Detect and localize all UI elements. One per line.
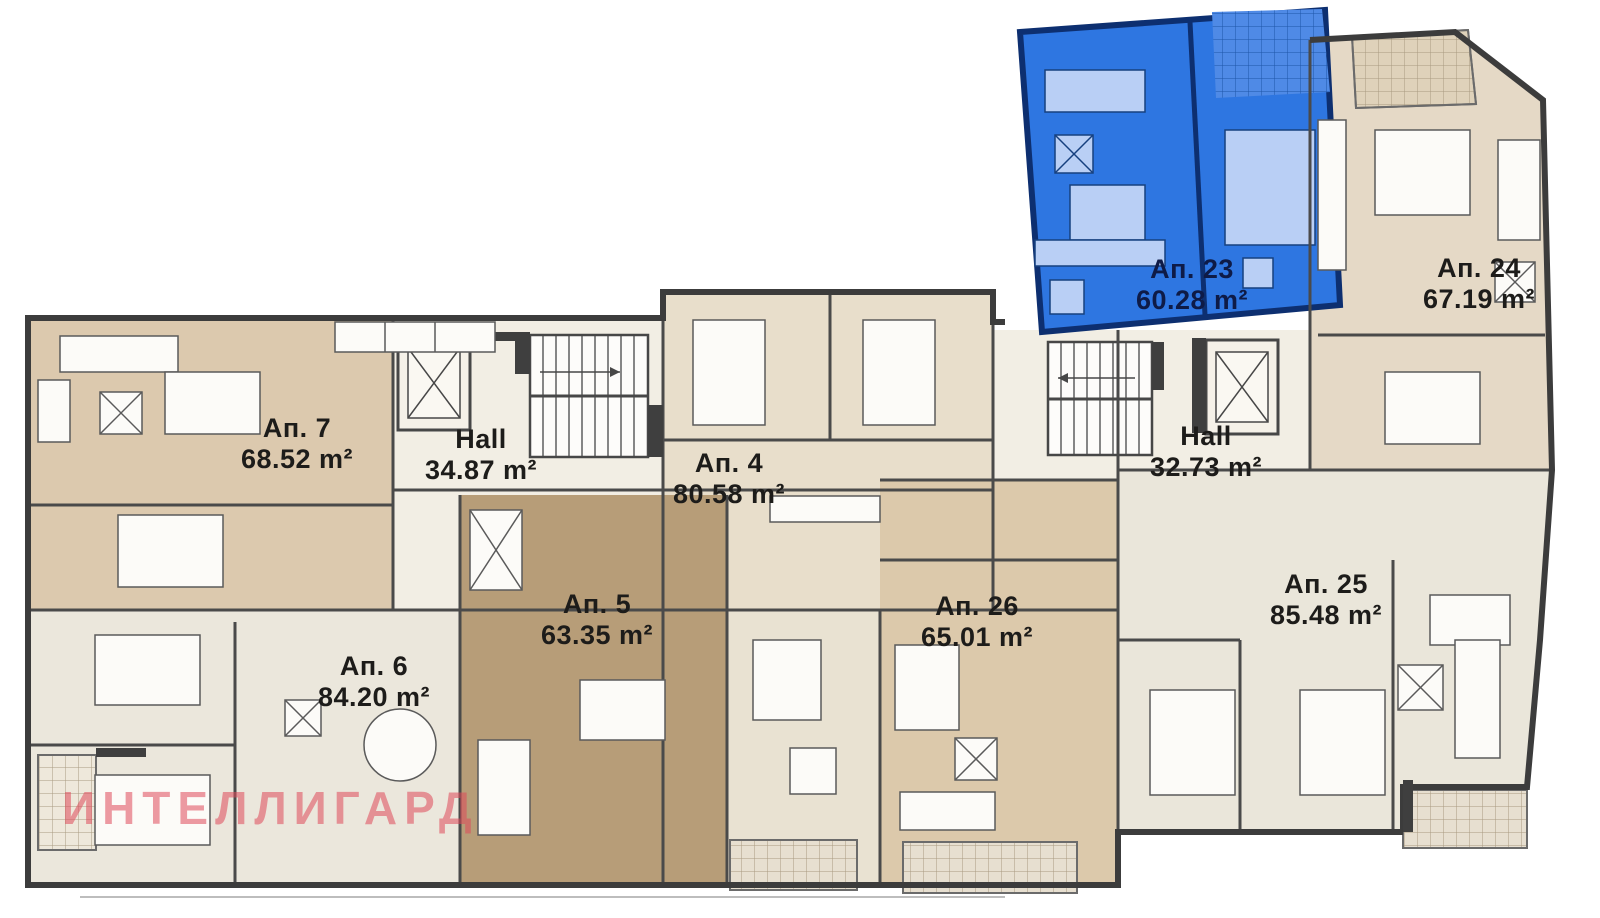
unit-name: Ап. 23 [1136, 254, 1248, 285]
unit-area: 85.48 m² [1270, 600, 1382, 631]
unit-name: Ап. 26 [921, 591, 1033, 622]
unit-name: Hall [1150, 421, 1262, 452]
unit-area: 63.35 m² [541, 620, 653, 651]
label-ap5[interactable]: Ап. 5 63.35 m² [541, 589, 653, 651]
balcony-top-right [1352, 30, 1476, 108]
unit-name: Ап. 7 [241, 413, 353, 444]
unit-area: 67.19 m² [1423, 284, 1535, 315]
label-hall-right[interactable]: Hall 32.73 m² [1150, 421, 1262, 483]
unit-name: Ап. 4 [673, 448, 785, 479]
label-ap4[interactable]: Ап. 4 80.58 m² [673, 448, 785, 510]
unit-area: 80.58 m² [673, 479, 785, 510]
label-ap24[interactable]: Ап. 24 67.19 m² [1423, 253, 1535, 315]
watermark-text: ИНТЕЛЛИГАРД [62, 781, 479, 835]
unit-area: 84.20 m² [318, 682, 430, 713]
unit-name: Ап. 25 [1270, 569, 1382, 600]
unit-name: Hall [425, 424, 537, 455]
unit-area: 34.87 m² [425, 455, 537, 486]
unit-name: Ап. 24 [1423, 253, 1535, 284]
unit-area: 60.28 m² [1136, 285, 1248, 316]
unit-name: Ап. 6 [318, 651, 430, 682]
label-hall-left[interactable]: Hall 34.87 m² [425, 424, 537, 486]
label-ap23-highlighted[interactable]: Ап. 23 60.28 m² [1136, 254, 1248, 316]
unit-area: 32.73 m² [1150, 452, 1262, 483]
label-ap25[interactable]: Ап. 25 85.48 m² [1270, 569, 1382, 631]
balcony-blue-terrace [1212, 9, 1330, 98]
label-ap7[interactable]: Ап. 7 68.52 m² [241, 413, 353, 475]
stairs-left-icon [530, 335, 648, 457]
label-ap26[interactable]: Ап. 26 65.01 m² [921, 591, 1033, 653]
balcony-bottom-right [1403, 790, 1527, 848]
unit-name: Ап. 5 [541, 589, 653, 620]
elevator-right-icon [1206, 340, 1278, 434]
label-ap6[interactable]: Ап. 6 84.20 m² [318, 651, 430, 713]
floor-plan-page: Ап. 7 68.52 m² Hall 34.87 m² Ап. 4 80.58… [0, 0, 1600, 918]
unit-area: 68.52 m² [241, 444, 353, 475]
unit-area: 65.01 m² [921, 622, 1033, 653]
stairs-right-icon [1048, 342, 1152, 455]
